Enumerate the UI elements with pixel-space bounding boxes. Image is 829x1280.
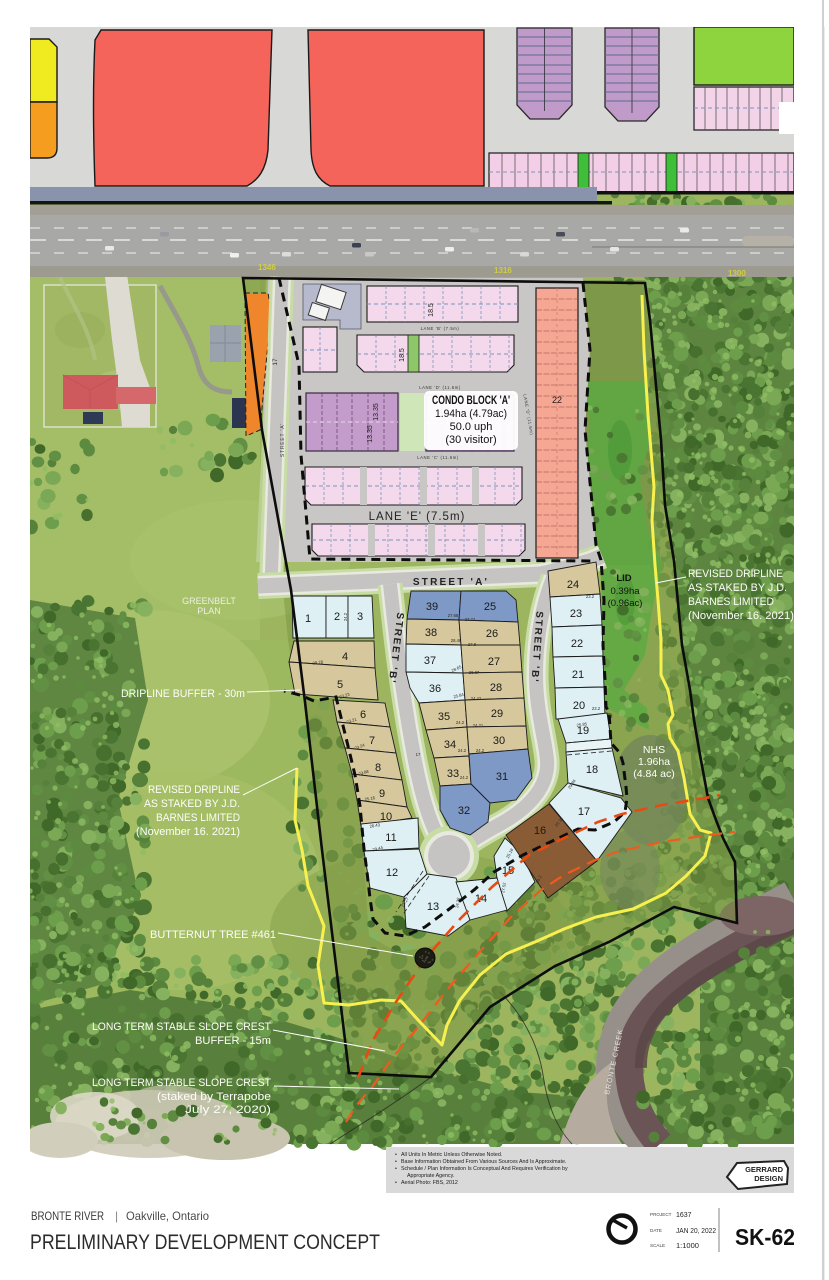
svg-text:18: 18 xyxy=(586,764,598,776)
svg-text:|: | xyxy=(115,1209,118,1223)
svg-text:Base Information Obtained From: Base Information Obtained From Various S… xyxy=(401,1159,566,1165)
svg-text:STREET 'A': STREET 'A' xyxy=(280,423,286,457)
svg-text:REVISED DRIPLINE: REVISED DRIPLINE xyxy=(148,784,240,796)
svg-text:1346: 1346 xyxy=(258,263,276,272)
svg-text:DATE: DATE xyxy=(650,1228,662,1233)
svg-text:31: 31 xyxy=(496,771,508,783)
svg-text:23.2: 23.2 xyxy=(592,706,601,711)
svg-text:18.5: 18.5 xyxy=(428,303,435,317)
svg-text:24.2: 24.2 xyxy=(460,775,469,780)
svg-text:50.0 uph: 50.0 uph xyxy=(450,421,493,433)
svg-text:PROJECT: PROJECT xyxy=(650,1212,672,1217)
svg-text:1:1000: 1:1000 xyxy=(676,1241,699,1250)
svg-text:12: 12 xyxy=(386,867,398,879)
svg-text:28: 28 xyxy=(490,682,502,694)
svg-text:LANE 'C' (11.6m): LANE 'C' (11.6m) xyxy=(417,455,459,460)
svg-text:33: 33 xyxy=(447,768,459,780)
svg-text:13.35: 13.35 xyxy=(373,403,380,421)
svg-text:24.42: 24.42 xyxy=(471,696,482,701)
svg-text:BARNES LIMITED: BARNES LIMITED xyxy=(156,812,240,824)
svg-text:3: 3 xyxy=(357,611,363,623)
svg-text:23.2: 23.2 xyxy=(586,594,595,599)
svg-text:35: 35 xyxy=(438,711,450,723)
svg-text:17: 17 xyxy=(578,806,590,818)
svg-text:0.39ha: 0.39ha xyxy=(610,586,640,597)
svg-text:(November 16. 2021): (November 16. 2021) xyxy=(688,610,794,622)
svg-text:July 27, 2020): July 27, 2020) xyxy=(185,1104,271,1116)
svg-text:STREET 'A': STREET 'A' xyxy=(413,577,489,588)
svg-text:9: 9 xyxy=(379,788,385,800)
svg-text:22: 22 xyxy=(571,638,583,650)
svg-text:22: 22 xyxy=(552,395,562,405)
svg-text:LANE 'D' (11.6m): LANE 'D' (11.6m) xyxy=(419,385,461,390)
svg-text:18.5: 18.5 xyxy=(399,348,406,362)
svg-text:17: 17 xyxy=(272,358,279,366)
svg-text:•: • xyxy=(395,1152,397,1158)
svg-text:LONG TERM STABLE SLOPE CREST: LONG TERM STABLE SLOPE CREST xyxy=(92,1077,271,1089)
svg-text:24.2: 24.2 xyxy=(458,748,467,753)
svg-text:LANE 'B' (7.5m): LANE 'B' (7.5m) xyxy=(421,326,460,331)
svg-text:6: 6 xyxy=(360,709,366,721)
svg-text:DESIGN: DESIGN xyxy=(754,1174,783,1183)
svg-text:24.2: 24.2 xyxy=(456,720,465,725)
svg-text:1.96ha: 1.96ha xyxy=(638,756,670,768)
svg-text:4: 4 xyxy=(342,651,348,663)
svg-text:BUFFER - 15m: BUFFER - 15m xyxy=(195,1035,271,1047)
svg-text:BUTTERNUT TREE #461: BUTTERNUT TREE #461 xyxy=(150,929,276,941)
svg-text:7: 7 xyxy=(369,735,375,747)
svg-text:(staked by Terrapobe: (staked by Terrapobe xyxy=(157,1091,271,1103)
svg-text:1300: 1300 xyxy=(728,269,746,278)
svg-text:GERRARD: GERRARD xyxy=(745,1165,784,1174)
svg-text:All Units In Metric Unless Oth: All Units In Metric Unless Otherwise Not… xyxy=(401,1152,502,1158)
svg-text:24: 24 xyxy=(567,579,579,591)
svg-text:1.94ha (4.79ac): 1.94ha (4.79ac) xyxy=(435,408,507,420)
svg-text:AS STAKED BY J.D.: AS STAKED BY J.D. xyxy=(688,582,787,594)
svg-text:24.21: 24.21 xyxy=(473,723,484,728)
svg-text:SCALE: SCALE xyxy=(650,1243,665,1248)
svg-text:26: 26 xyxy=(486,628,498,640)
svg-text:13.35: 13.35 xyxy=(367,425,374,443)
svg-text:PLAN: PLAN xyxy=(197,606,221,616)
svg-text:1316: 1316 xyxy=(494,266,512,275)
svg-text:37: 37 xyxy=(424,655,436,667)
svg-text:21: 21 xyxy=(572,669,584,681)
svg-text:26.37: 26.37 xyxy=(469,670,480,675)
svg-text:11: 11 xyxy=(385,832,396,844)
svg-text:5: 5 xyxy=(337,679,343,691)
svg-text:32: 32 xyxy=(458,805,470,817)
svg-text:GREENBELT: GREENBELT xyxy=(182,596,236,606)
svg-text:24.2: 24.2 xyxy=(343,612,348,621)
svg-text:16: 16 xyxy=(534,825,546,837)
svg-text:1: 1 xyxy=(305,613,311,625)
svg-text:30: 30 xyxy=(493,735,505,747)
svg-text:•: • xyxy=(395,1180,397,1186)
svg-text:28.49: 28.49 xyxy=(451,638,462,643)
svg-text:LANE 'E' (7.5m): LANE 'E' (7.5m) xyxy=(369,511,466,523)
svg-text:38: 38 xyxy=(425,627,437,639)
svg-text:AS STAKED BY J.D.: AS STAKED BY J.D. xyxy=(144,798,240,810)
svg-text:20: 20 xyxy=(573,700,585,712)
svg-text:39: 39 xyxy=(426,601,438,613)
svg-text:36: 36 xyxy=(429,683,441,695)
svg-text:DRIPLINE BUFFER - 30m: DRIPLINE BUFFER - 30m xyxy=(121,688,245,700)
svg-text:8: 8 xyxy=(375,762,381,774)
svg-text:JAN 20, 2022: JAN 20, 2022 xyxy=(676,1226,716,1235)
svg-text:27.74: 27.74 xyxy=(465,617,476,622)
svg-text:(0.96ac): (0.96ac) xyxy=(608,598,643,609)
svg-text:PRELIMINARY DEVELOPMENT CONCEP: PRELIMINARY DEVELOPMENT CONCEPT xyxy=(30,1230,380,1254)
svg-text:27.8: 27.8 xyxy=(468,642,477,647)
svg-text:Schedule / Plan Information Is: Schedule / Plan Information Is Conceptua… xyxy=(401,1166,568,1172)
svg-text:LID: LID xyxy=(616,573,631,584)
svg-text:13: 13 xyxy=(427,901,439,913)
svg-text:34: 34 xyxy=(444,739,456,751)
svg-text:Oakville, Ontario: Oakville, Ontario xyxy=(126,1209,209,1223)
svg-text:LONG TERM STABLE SLOPE CREST: LONG TERM STABLE SLOPE CREST xyxy=(92,1021,271,1033)
svg-text:NHS: NHS xyxy=(643,744,665,756)
svg-text:Aerial Photo: FBS, 2012: Aerial Photo: FBS, 2012 xyxy=(401,1180,458,1186)
svg-text:23: 23 xyxy=(570,608,582,620)
svg-text:(November 16. 2021): (November 16. 2021) xyxy=(136,826,240,838)
svg-text:BARNES LIMITED: BARNES LIMITED xyxy=(688,596,774,608)
svg-text:25: 25 xyxy=(484,601,496,613)
svg-text:(30 visitor): (30 visitor) xyxy=(445,434,496,446)
svg-text:1637: 1637 xyxy=(676,1212,692,1219)
svg-text:27.68: 27.68 xyxy=(448,613,459,618)
svg-text:24.2: 24.2 xyxy=(476,748,485,753)
svg-text:17: 17 xyxy=(416,752,421,757)
svg-text:2: 2 xyxy=(334,611,340,623)
svg-text:BRONTE RIVER: BRONTE RIVER xyxy=(31,1209,104,1223)
svg-text:27: 27 xyxy=(488,656,500,668)
svg-text:•: • xyxy=(395,1159,397,1165)
svg-text:REVISED DRIPLINE: REVISED DRIPLINE xyxy=(688,568,783,580)
svg-text:Appropriate Agency.: Appropriate Agency. xyxy=(407,1173,454,1179)
svg-text:29: 29 xyxy=(491,708,503,720)
svg-text:(4.84 ac): (4.84 ac) xyxy=(633,768,674,780)
svg-text:•: • xyxy=(395,1166,397,1172)
svg-text:CONDO BLOCK 'A': CONDO BLOCK 'A' xyxy=(432,395,510,407)
svg-text:SK-62: SK-62 xyxy=(735,1224,795,1250)
